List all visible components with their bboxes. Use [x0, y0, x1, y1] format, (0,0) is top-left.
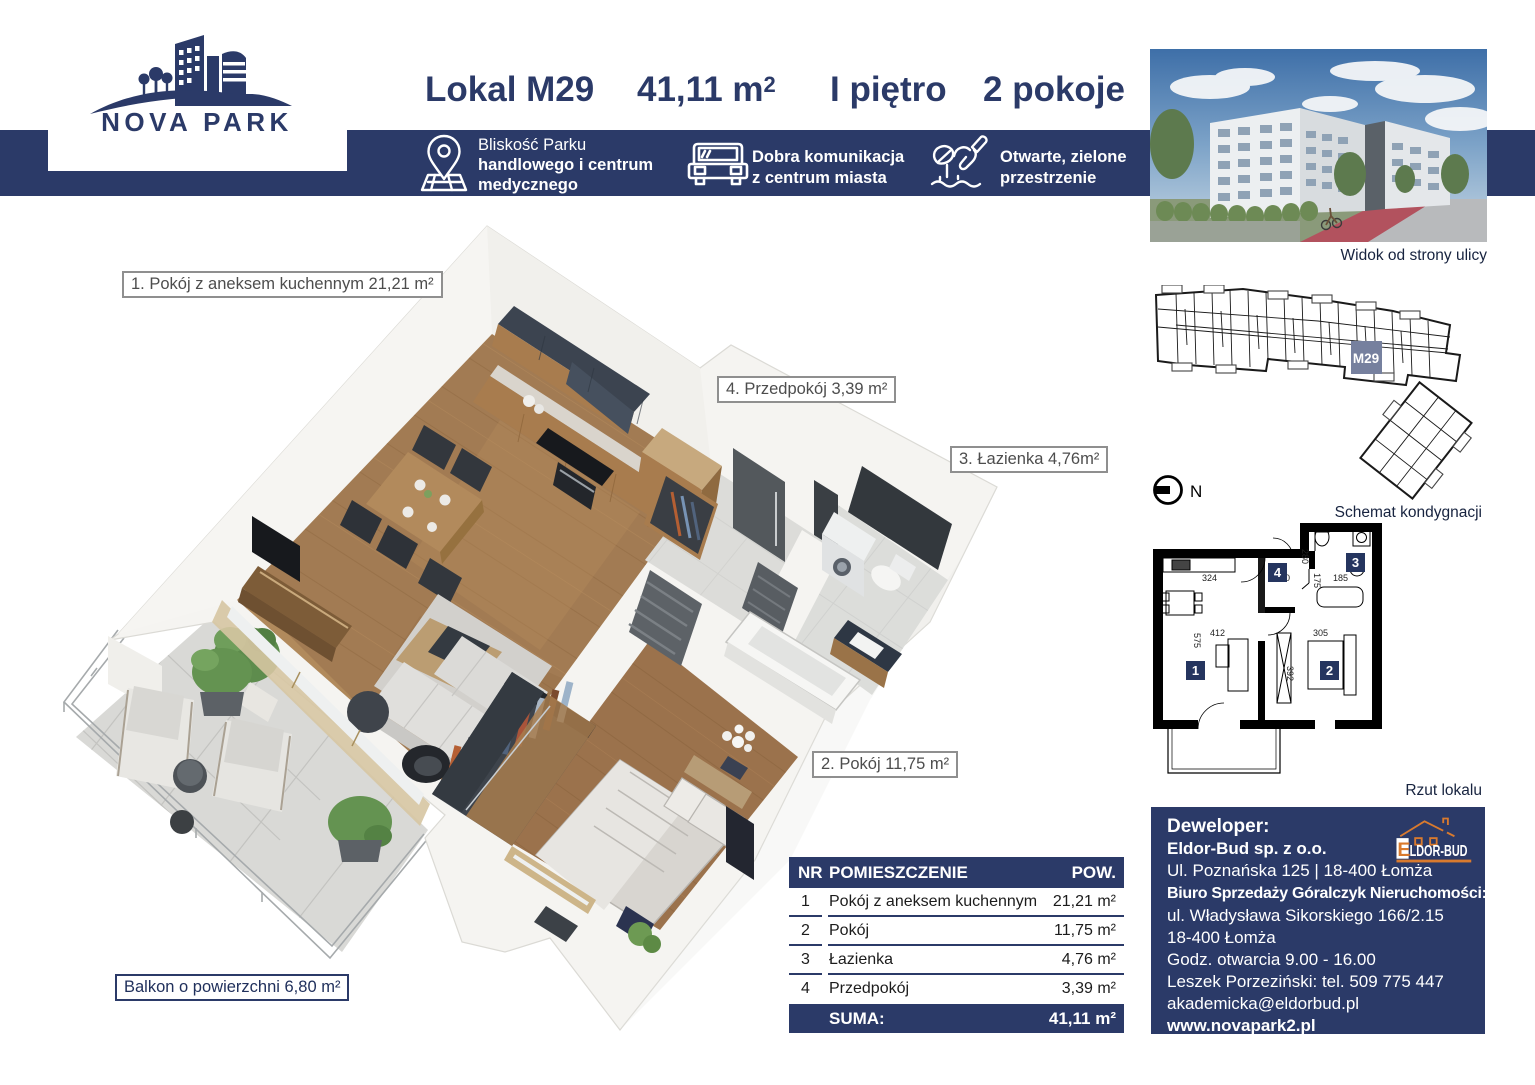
svg-text:E: E	[1397, 839, 1410, 861]
svg-text:LDOR-BUD: LDOR-BUD	[1410, 843, 1468, 860]
